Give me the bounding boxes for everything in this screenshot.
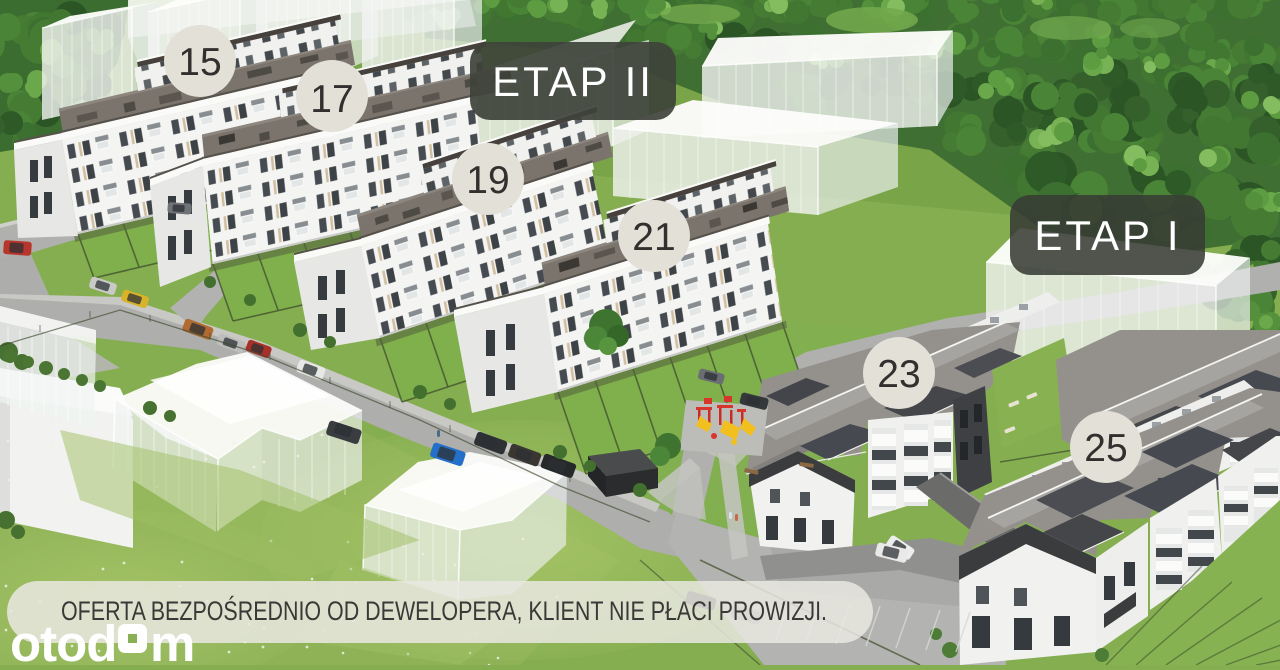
svg-text:15: 15 [178,41,221,84]
svg-text:ETAP I: ETAP I [1034,212,1181,259]
svg-text:otod: otod [10,615,116,665]
svg-text:19: 19 [466,159,509,202]
svg-text:25: 25 [1084,427,1127,470]
svg-text:ETAP II: ETAP II [492,58,654,105]
svg-text:m: m [150,615,195,665]
svg-text:21: 21 [632,216,675,259]
svg-text:23: 23 [877,353,920,396]
svg-text:17: 17 [310,78,353,121]
